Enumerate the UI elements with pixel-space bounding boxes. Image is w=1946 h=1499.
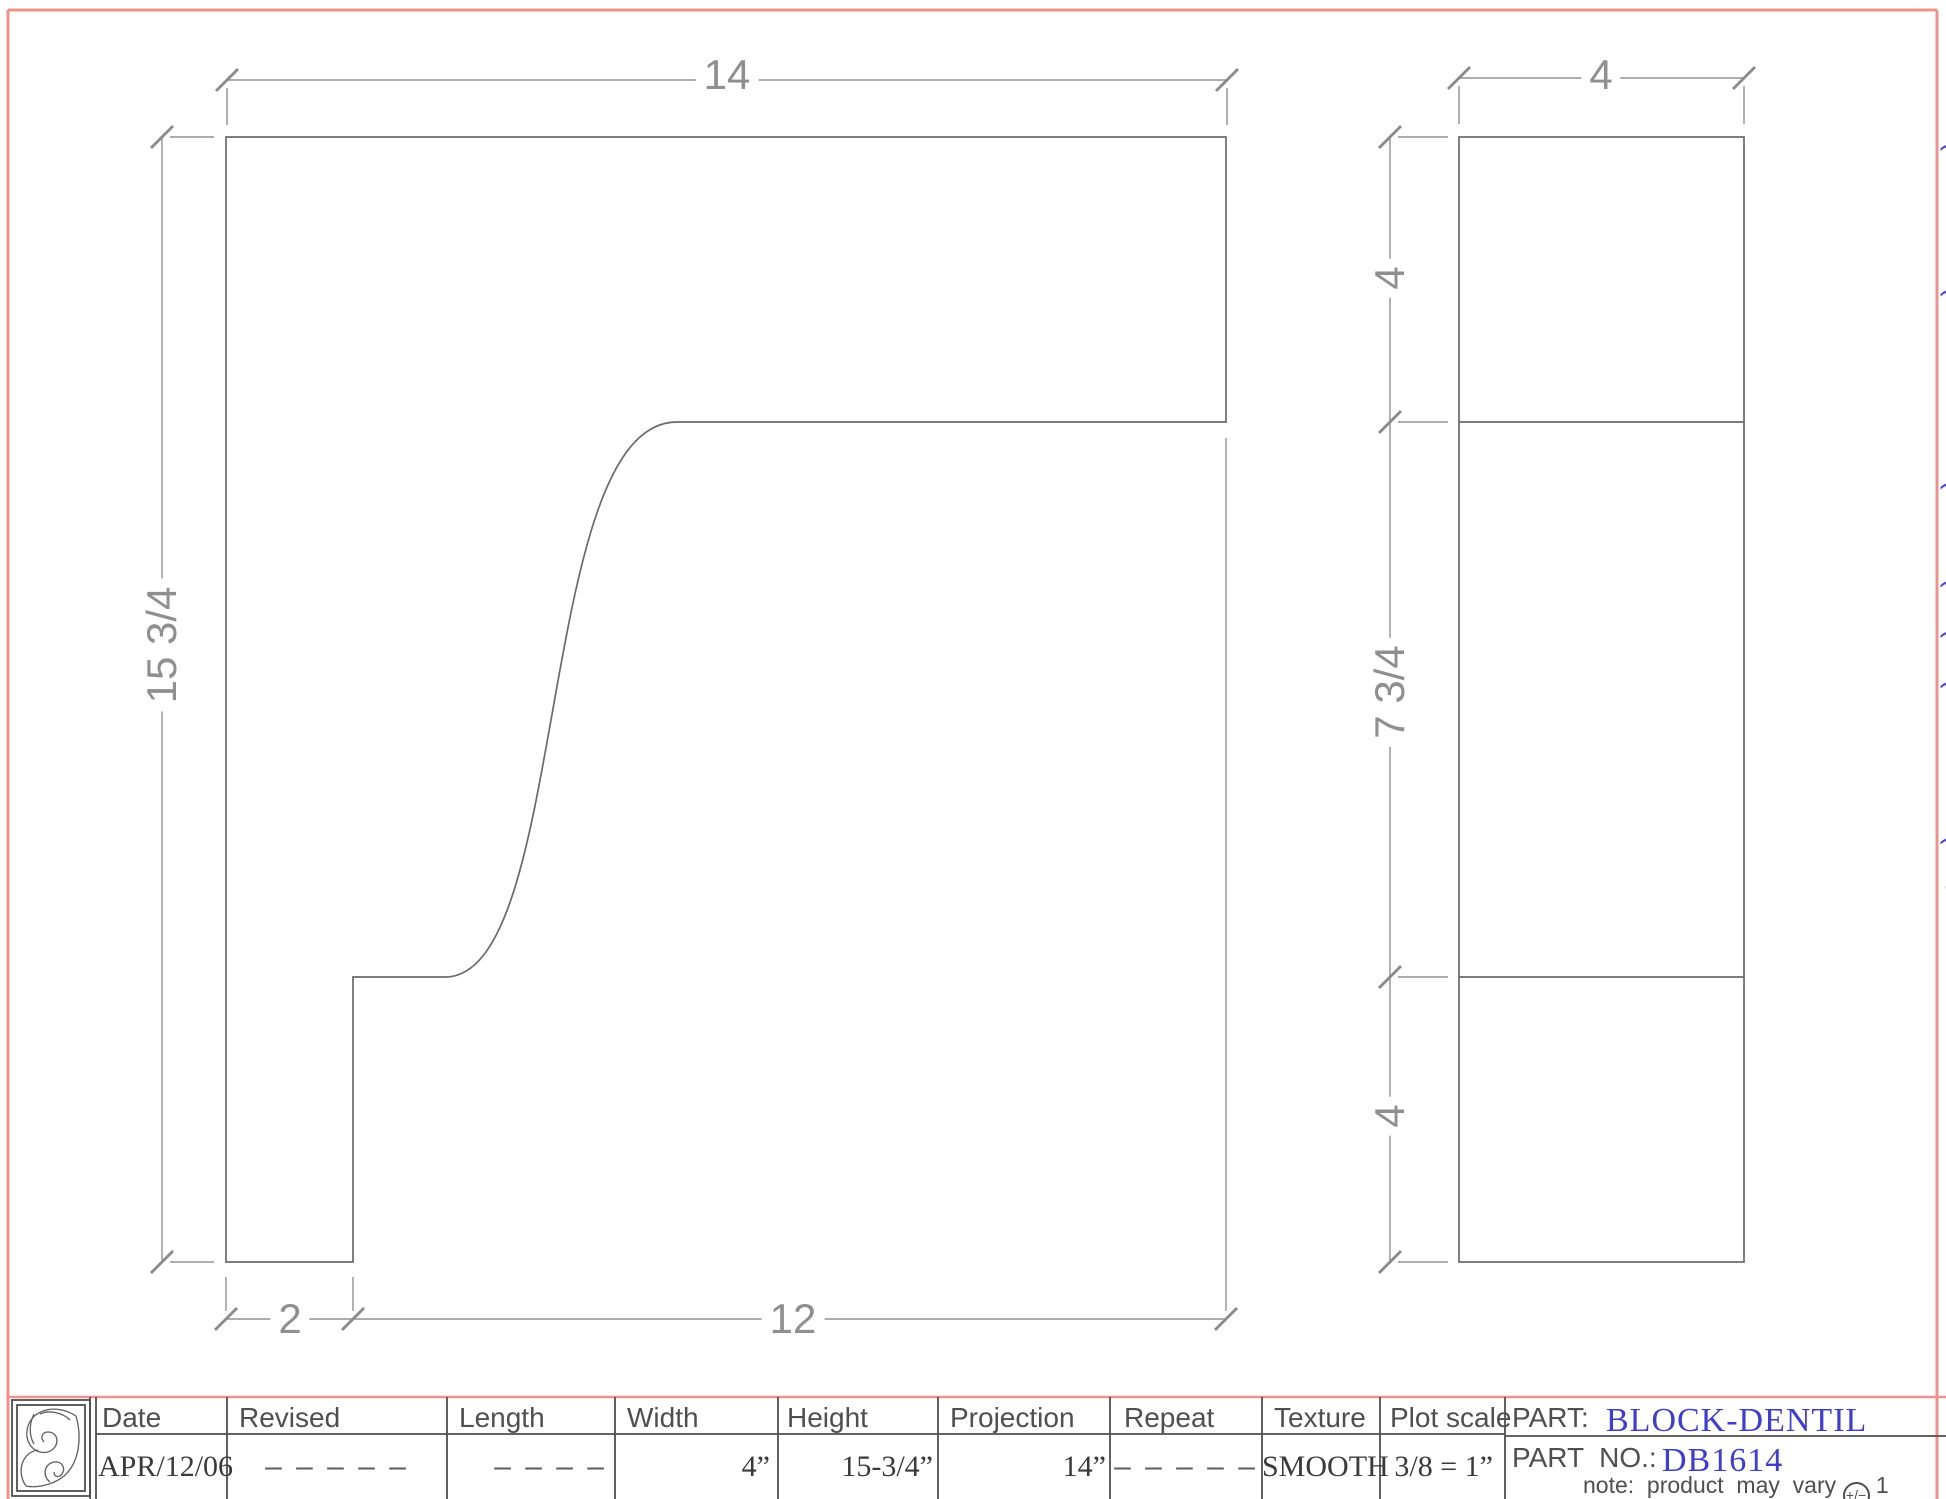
tolerance-note-suffix: 1: [1870, 1472, 1889, 1498]
header-texture: Texture: [1274, 1401, 1366, 1435]
front-top-dimension-label: 14: [696, 54, 759, 96]
value-texture: SMOOTH: [1262, 1446, 1380, 1488]
header-date: Date: [102, 1401, 161, 1435]
part-name: BLOCK-DENTIL: [1606, 1404, 1867, 1438]
value-plot-scale: 3/8 = 1”: [1380, 1446, 1493, 1488]
value-revised: – – – – –: [227, 1446, 447, 1488]
header-length: Length: [459, 1401, 545, 1435]
header-height: Height: [787, 1401, 868, 1435]
header-revised: Revised: [239, 1401, 340, 1435]
front-left-dimension-label: 15 3/4: [141, 579, 183, 712]
plus-minus-circle-icon: +/−: [1843, 1482, 1870, 1499]
tolerance-note: note: product may vary +/− 1: [1583, 1470, 1889, 1499]
side-middle-dimension-label: 7 3/4: [1369, 637, 1411, 746]
front-bottom-left-dimension-label: 2: [270, 1298, 309, 1340]
side-view-outline: [1459, 137, 1744, 1262]
edge-vertical-text: ( l l ( l l l ( l ( ( ( F l ( / l l: [1935, 142, 1946, 1032]
page-border: [8, 10, 1946, 1499]
edge-vertical-text-fragments: ( l l ( l l l ( l ( ( ( F l ( / l l: [1939, 142, 1946, 1005]
value-projection: 14”: [938, 1446, 1106, 1488]
logo-ornament-icon: [21, 1409, 79, 1487]
value-length: – – – –: [447, 1446, 607, 1488]
value-height: 15-3/4”: [778, 1446, 933, 1488]
side-upper-dimension-label: 4: [1369, 258, 1411, 297]
dimension-lines: [162, 78, 1744, 1319]
dimension-ticks: [151, 67, 1755, 1330]
header-projection: Projection: [950, 1401, 1075, 1435]
header-plot-scale: Plot scale: [1390, 1401, 1511, 1435]
front-view-profile: [226, 137, 1226, 1262]
front-bottom-right-dimension-label: 12: [762, 1298, 825, 1340]
side-lower-dimension-label: 4: [1369, 1096, 1411, 1135]
side-top-dimension-label: 4: [1581, 54, 1620, 96]
value-date: APR/12/06: [98, 1446, 233, 1488]
cad-linework: [0, 0, 1946, 1499]
value-width: 4”: [615, 1446, 770, 1488]
drawing-sheet: 14 15 3/4 2 12 4 4 7 3/4 4 ( l l ( l l l…: [0, 0, 1946, 1499]
header-width: Width: [627, 1401, 699, 1435]
value-repeat: – – – – –: [1110, 1446, 1262, 1488]
tolerance-note-text: note: product may vary: [1583, 1472, 1843, 1498]
part-label: PART:: [1512, 1401, 1589, 1435]
header-repeat: Repeat: [1124, 1401, 1214, 1435]
